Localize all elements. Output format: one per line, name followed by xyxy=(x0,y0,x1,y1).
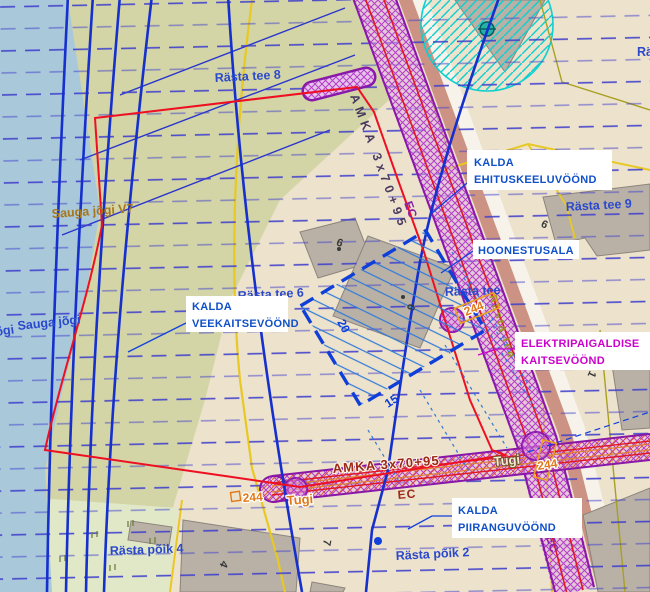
zone-label: KALDA xyxy=(458,505,498,517)
zone-label: KALDA xyxy=(474,157,514,169)
street-label: Rä xyxy=(637,45,650,59)
zone-label: HOONESTUSALA xyxy=(478,245,574,257)
pole-number: 244 xyxy=(536,456,558,473)
map-canvas[interactable]: Rästa xyxy=(0,0,650,592)
zone-label: PIIRANGUVÖÖND xyxy=(458,521,556,534)
street-label: Rästa põik 4 xyxy=(110,541,184,558)
zone-label: EHITUSKEELUVÖÖND xyxy=(474,173,597,186)
zone-label: ELEKTRIPAIGALDISE xyxy=(521,338,640,350)
pole-number: 244 xyxy=(242,490,263,505)
zone-label: KAITSEVÖÖND xyxy=(521,354,605,367)
map-viewport: Rästa xyxy=(0,0,650,592)
line-node-dot xyxy=(374,537,382,545)
zone-label: VEEKAITSEVÖÖND xyxy=(192,317,299,330)
pole-label: Tugi xyxy=(493,452,521,469)
pole-label: Tugi xyxy=(286,491,313,508)
water-label: õgi xyxy=(0,322,15,338)
cable-code: EC xyxy=(397,486,417,502)
zone-label: KALDA xyxy=(192,301,232,313)
